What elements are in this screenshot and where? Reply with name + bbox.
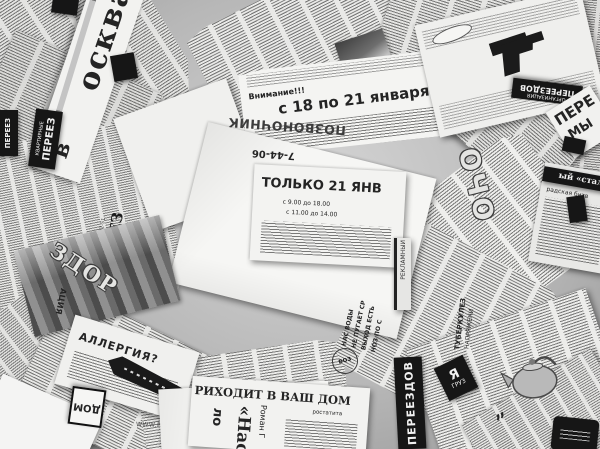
lo-vertical-text: ло	[209, 407, 224, 426]
black-bit-right-2	[566, 195, 587, 223]
prostatita-text: ростатита	[312, 410, 342, 418]
corner-white-dashes	[560, 428, 591, 441]
black-label-kv	[110, 52, 138, 82]
tolko-21-clipping: ТОЛЬКО 21 ЯНВ с 9.00 до 18.00 с 11.00 до…	[250, 164, 407, 268]
teapot-image	[497, 346, 568, 406]
dom-box: ДОМ	[68, 386, 107, 428]
phone-number-top: 7-44-06	[252, 147, 296, 160]
newspaper-collage-photo: осква в ПЕРЕЕЗ КВАРТИРНЫЕ ПЕРЕЕЗ Внимани…	[0, 0, 600, 449]
pereez-left-label: ПЕРЕЕЗ	[0, 110, 18, 156]
voz-text: воз	[338, 356, 353, 367]
nas-vertical-text: «Нас	[231, 405, 252, 449]
prihodit-body-lines	[284, 418, 358, 449]
prihodit-headline: РИХОДИТ В ВАШ ДОМ	[194, 384, 351, 407]
pereezdov-vertical-label: ПЕРЕЕЗДОВ	[394, 356, 427, 449]
pereezdov-vertical-text: ПЕРЕЕЗДОВ	[401, 361, 418, 446]
roman-vertical-text: Роман Г	[256, 405, 267, 439]
tolko-body-lines	[260, 221, 391, 260]
stal-header-text: ый «стал	[558, 172, 600, 189]
tolko-21-headline: ТОЛЬКО 21 ЯНВ	[261, 176, 382, 196]
tuberkulez-line2: НАПРЯЖЕНИ	[464, 309, 475, 350]
schedule-line-1: с 9.00 до 18.00	[282, 200, 330, 209]
prihodit-clipping: РИХОДИТ В ВАШ ДОМ ростатита «Нас Роман Г…	[188, 376, 370, 449]
schedule-line-2: с 11.00 до 14.00	[286, 210, 337, 219]
pereez-left-text: ПЕРЕЕЗ	[4, 118, 12, 148]
dom-text: ДОМ	[73, 400, 102, 414]
corner-black-piece	[550, 416, 599, 449]
reklamny-text: РЕКЛАМНЫЙ	[400, 240, 407, 280]
